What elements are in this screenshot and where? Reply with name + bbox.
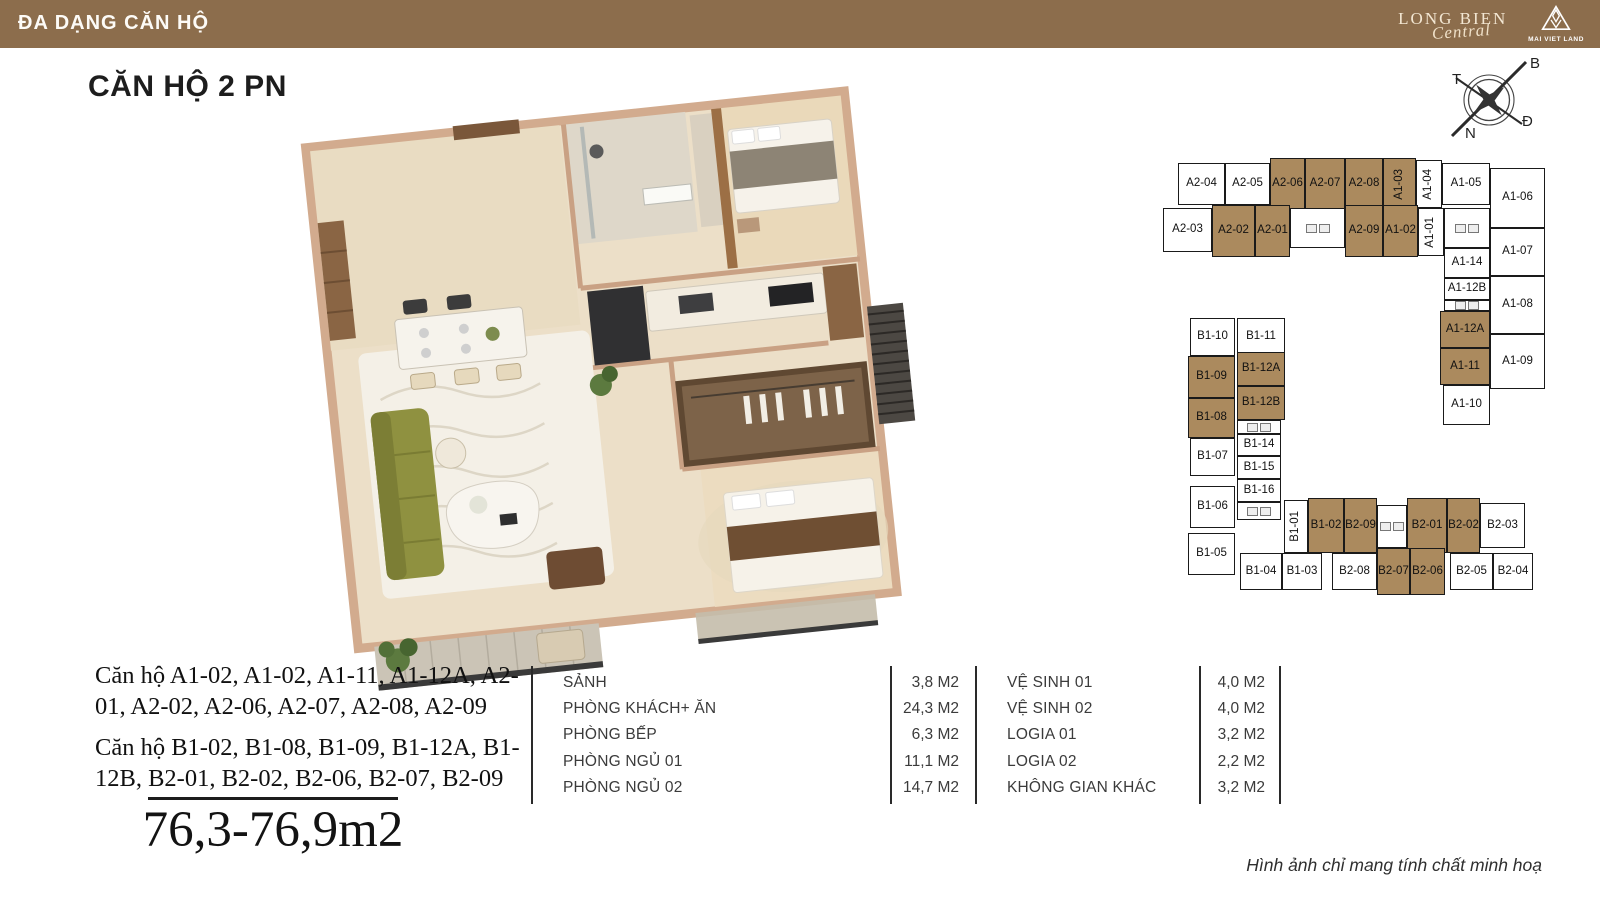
room-label: LOGIA 01 [977, 726, 1196, 744]
keyplan-unit-B1-14: B1-14 [1237, 434, 1281, 456]
area-row: VỆ SINH 014,0 M2 [977, 670, 1279, 696]
keyplan-unit-A2-03: A2-03 [1163, 208, 1212, 252]
table-divider [890, 666, 892, 804]
area-range: 76,3-76,9m2 [118, 801, 428, 859]
keyplan-core-cell [1444, 208, 1490, 248]
compass-east-label: Đ [1522, 113, 1533, 130]
room-area-table-right: VỆ SINH 014,0 M2VỆ SINH 024,0 M2LOGIA 01… [975, 666, 1281, 804]
keyplan-unit-A1-02: A1-02 [1383, 205, 1418, 257]
unit-group-a: Căn hộ A1-02, A1-02, A1-11, A1-12A, A2-0… [95, 660, 542, 723]
keyplan-unit-B1-04: B1-04 [1240, 553, 1282, 590]
keyplan-unit-B1-12B: B1-12B [1237, 386, 1285, 420]
area-row: LOGIA 022,2 M2 [977, 749, 1279, 775]
room-area-value: 14,7 M2 [888, 779, 975, 797]
page-title: CĂN HỘ 2 PN [88, 70, 287, 104]
keyplan-core-cell [1290, 208, 1345, 248]
area-row: PHÒNG NGỦ 0111,1 M2 [533, 749, 975, 775]
keyplan-unit-B2-06: B2-06 [1410, 548, 1445, 595]
keyplan-unit-B1-16: B1-16 [1237, 479, 1281, 502]
room-label: LOGIA 02 [977, 753, 1196, 771]
keyplan-core-cell [1237, 502, 1281, 520]
keyplan-unit-B1-03: B1-03 [1282, 553, 1322, 590]
triangle-logo-icon [1541, 5, 1571, 35]
keyplan-unit-B2-02: B2-02 [1447, 498, 1480, 553]
room-area-value: 3,2 M2 [1196, 779, 1279, 797]
disclaimer-text: Hình ảnh chỉ mang tính chất minh hoạ [1246, 855, 1542, 876]
keyplan-unit-B1-06: B1-06 [1190, 486, 1235, 528]
unit-list: Căn hộ A1-02, A1-02, A1-11, A1-12A, A2-0… [95, 660, 542, 803]
apartment-3d-floorplan-illustration [268, 76, 940, 648]
keyplan-unit-A1-03: A1-03 [1383, 158, 1416, 210]
room-area-value: 4,0 M2 [1196, 674, 1279, 692]
keyplan-unit-B2-01: B2-01 [1407, 498, 1447, 553]
brochure-slide: ĐA DẠNG CĂN HỘ LONG BIEN Central MAI VIE… [0, 0, 1600, 899]
keyplan-unit-A1-11: A1-11 [1440, 348, 1490, 385]
room-label: KHÔNG GIAN KHÁC [977, 779, 1196, 797]
keyplan-unit-A1-10: A1-10 [1443, 385, 1490, 425]
keyplan-unit-B2-04: B2-04 [1493, 553, 1533, 590]
developer-name: MAI VIET LAND [1528, 36, 1584, 43]
area-row: PHÒNG BẾP6,3 M2 [533, 722, 975, 748]
compass-icon: B T N Đ [1438, 54, 1550, 146]
area-row: LOGIA 013,2 M2 [977, 722, 1279, 748]
project-logo: LONG BIEN Central MAI VIET LAND [1398, 2, 1584, 48]
keyplan-unit-A1-12A: A1-12A [1440, 311, 1490, 348]
room-label: VỆ SINH 01 [977, 674, 1196, 692]
room-label: PHÒNG NGỦ 01 [533, 753, 888, 771]
keyplan-unit-A2-02: A2-02 [1212, 205, 1255, 257]
keyplan-unit-A1-12B: A1-12B [1444, 278, 1490, 300]
room-label: PHÒNG BẾP [533, 726, 888, 744]
keyplan-unit-A2-01: A2-01 [1255, 205, 1290, 257]
keyplan-unit-A2-08: A2-08 [1345, 158, 1383, 210]
keyplan-unit-A2-06: A2-06 [1270, 158, 1305, 210]
room-area-value: 4,0 M2 [1196, 700, 1279, 718]
keyplan-unit-A1-05: A1-05 [1442, 163, 1490, 205]
room-area-table-left: SẢNH3,8 M2PHÒNG KHÁCH+ ĂN24,3 M2PHÒNG BẾ… [531, 666, 975, 804]
keyplan-unit-A2-04: A2-04 [1178, 163, 1225, 205]
keyplan-unit-B1-10: B1-10 [1190, 318, 1235, 356]
keyplan-unit-B2-09: B2-09 [1344, 498, 1377, 553]
room-label: PHÒNG NGỦ 02 [533, 779, 888, 797]
room-area-value: 24,3 M2 [888, 700, 975, 718]
keyplan-core-cell [1444, 300, 1490, 311]
divider-line [148, 797, 398, 800]
compass-north-label: B [1530, 55, 1540, 72]
room-area-value: 6,3 M2 [888, 726, 975, 744]
header-bar: ĐA DẠNG CĂN HỘ LONG BIEN Central MAI VIE… [0, 0, 1600, 48]
keyplan-unit-B1-08: B1-08 [1188, 398, 1235, 438]
keyplan-core-cell [1237, 420, 1281, 434]
keyplan-core-cell [1377, 505, 1407, 548]
keyplan-unit-B2-03: B2-03 [1480, 503, 1525, 548]
keyplan-unit-A1-08: A1-08 [1490, 276, 1545, 334]
logo-line2: Central [1432, 20, 1492, 44]
keyplan-unit-B2-08: B2-08 [1332, 553, 1377, 590]
compass-south-label: N [1465, 125, 1476, 142]
compass-west-label: T [1452, 71, 1461, 88]
room-area-value: 11,1 M2 [888, 753, 975, 771]
keyplan-unit-A2-09: A2-09 [1345, 205, 1383, 257]
keyplan-unit-B1-07: B1-07 [1190, 438, 1235, 476]
keyplan-unit-B1-02: B1-02 [1308, 498, 1344, 553]
area-row: SẢNH3,8 M2 [533, 670, 975, 696]
keyplan-unit-A2-05: A2-05 [1225, 163, 1270, 205]
keyplan-unit-A1-04: A1-04 [1416, 160, 1442, 208]
keyplan-unit-A1-07: A1-07 [1490, 228, 1545, 276]
area-row: KHÔNG GIAN KHÁC3,2 M2 [977, 775, 1279, 801]
room-area-value: 3,8 M2 [888, 674, 975, 692]
keyplan-unit-B1-05: B1-05 [1188, 533, 1235, 575]
keyplan-unit-B1-11: B1-11 [1237, 318, 1285, 356]
developer-logo: MAI VIET LAND [1528, 5, 1584, 43]
room-label: SẢNH [533, 674, 888, 692]
keyplan-unit-B2-07: B2-07 [1377, 548, 1410, 595]
header-title: ĐA DẠNG CĂN HỘ [18, 12, 209, 35]
keyplan-unit-B1-12A: B1-12A [1237, 352, 1285, 386]
area-row: PHÒNG NGỦ 0214,7 M2 [533, 775, 975, 801]
keyplan-unit-B1-09: B1-09 [1188, 356, 1235, 398]
keyplan-unit-B2-05: B2-05 [1450, 553, 1493, 590]
room-label: VỆ SINH 02 [977, 700, 1196, 718]
keyplan-unit-A2-07: A2-07 [1305, 158, 1345, 210]
area-row: PHÒNG KHÁCH+ ĂN24,3 M2 [533, 696, 975, 722]
keyplan-unit-B1-01: B1-01 [1284, 500, 1308, 553]
keyplan-unit-A1-09: A1-09 [1490, 334, 1545, 389]
unit-group-b: Căn hộ B1-02, B1-08, B1-09, B1-12A, B1-1… [95, 732, 542, 795]
keyplan-unit-A1-14: A1-14 [1444, 248, 1490, 278]
area-row: VỆ SINH 024,0 M2 [977, 696, 1279, 722]
keyplan-unit-A1-06: A1-06 [1490, 168, 1545, 228]
room-area-value: 3,2 M2 [1196, 726, 1279, 744]
kitchen-units [587, 286, 651, 366]
table-divider [1199, 666, 1201, 804]
keyplan-floorplate: A2-04A2-05A2-06A2-07A2-08A1-03A1-04A1-05… [1150, 150, 1550, 600]
room-area-value: 2,2 M2 [1196, 753, 1279, 771]
room-label: PHÒNG KHÁCH+ ĂN [533, 700, 888, 718]
keyplan-unit-B1-15: B1-15 [1237, 456, 1281, 479]
logo-wordmark: LONG BIEN Central [1398, 2, 1518, 46]
keyplan-unit-A1-01: A1-01 [1418, 208, 1444, 256]
